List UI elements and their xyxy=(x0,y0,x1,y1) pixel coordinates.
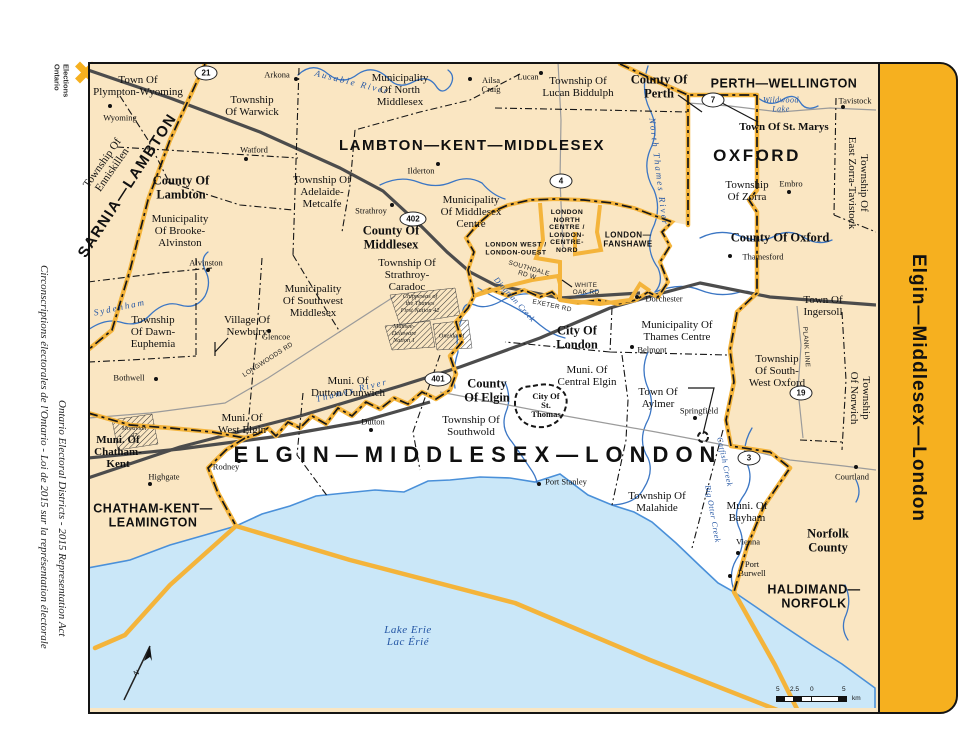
label-haldimand-norfolk: HALDIMAND—NORFOLK xyxy=(767,584,860,611)
label-chippewas-of-the-thames-first-na: Chippewas ofthe ThamesFirst Nation 42 xyxy=(401,294,440,314)
district-tab: Elgin—Middlesex—London xyxy=(878,62,958,714)
highway-shield-7: 7 xyxy=(702,93,725,108)
label-rodney: Rodney xyxy=(213,462,239,471)
town-dot xyxy=(736,551,740,555)
label-vienna: Vienna xyxy=(736,537,760,546)
label-wyoming: Wyoming xyxy=(103,113,137,122)
town-dot xyxy=(148,482,152,486)
label-courtland: Courtland xyxy=(835,472,869,481)
label-arkona: Arkona xyxy=(264,70,290,79)
label-town-of-st-marys: Town Of St. Marys xyxy=(739,122,828,134)
highway-shield-402: 402 xyxy=(400,212,427,227)
label-port-burwell: PortBurwell xyxy=(738,560,765,578)
town-dot xyxy=(294,77,298,81)
label-township-of-dawn-euphemia: TownshipOf Dawn-Euphemia xyxy=(131,315,176,351)
label-chatham-kent-leamington: CHATHAM-KENT—LEAMINGTON xyxy=(93,503,212,530)
map-page: ElectionsOntario Circonscriptions électo… xyxy=(0,0,959,740)
label-springfield: Springfield xyxy=(680,406,718,415)
scale-bar-graphic xyxy=(776,696,847,702)
highway-shield-19: 19 xyxy=(790,386,813,401)
highway-shield-4: 4 xyxy=(550,174,573,189)
label-lake-erie-lac-ri: Lake ErieLac Érié xyxy=(384,625,432,649)
label-township-of-malahide: Township OfMalahide xyxy=(628,491,686,515)
label-london-fanshawe: LONDON—FANSHAWE xyxy=(603,231,652,248)
label-alvinston: Alvinston xyxy=(189,258,223,267)
label-dutton: Dutton xyxy=(361,417,385,426)
label-town-of-plympton-wyoming: Town OfPlympton-Wyoming xyxy=(93,75,183,99)
label-municipality-of-middlesex-centre: MunicipalityOf MiddlesexCentre xyxy=(441,195,502,231)
town-dot xyxy=(468,77,472,81)
label-county-of-perth: County OfPerth xyxy=(631,74,688,101)
town-dot xyxy=(787,190,791,194)
label-oxford: OXFORD xyxy=(713,147,801,165)
label-watford: Watford xyxy=(240,145,268,154)
label-thamesford: Thamesford xyxy=(742,252,783,261)
town-dot xyxy=(635,295,639,299)
label-municipality-of-southwest-middle: MunicipalityOf SouthwestMiddlesex xyxy=(283,284,343,320)
label-ailsa-craig: AilsaCraig xyxy=(482,76,501,94)
label-township-of-south-west-oxford: TownshipOf South-West Oxford xyxy=(749,354,805,390)
label-municipality-of-thames-centre: Municipality OfThames Centre xyxy=(641,320,712,344)
label-county-of-middlesex: County OfMiddlesex xyxy=(363,225,420,252)
label-township-of-lucan-biddulph: Township OfLucan Biddulph xyxy=(542,76,613,100)
scale-label: 2.5 xyxy=(790,686,799,693)
label-township-of-norwich: TownshipOf Norwich xyxy=(847,372,871,425)
label-london-north-centre-london-centr: LONDONNORTHCENTRE /LONDON-CENTRE-NORD xyxy=(549,209,585,255)
label-lambton-kent-middlesex: LAMBTON—KENT—MIDDLESEX xyxy=(339,138,605,154)
town-dot xyxy=(537,482,541,486)
label-county-of-lambton: County OfLambton xyxy=(153,175,210,202)
label-dorchester: Dorchester xyxy=(645,294,682,303)
town-dot xyxy=(728,574,732,578)
label-oneida-41: Oneida 41 xyxy=(439,334,465,341)
label-county-of-elgin: CountyOf Elgin xyxy=(464,378,510,405)
label-muni-of-central-elgin: Muni. OfCentral Elgin xyxy=(558,365,617,389)
town-dot xyxy=(693,416,697,420)
label-ilderton: Ilderton xyxy=(408,166,435,175)
label-city-of-st-thomas: City OfSt.Thomas xyxy=(531,392,560,420)
town-dot xyxy=(206,268,210,272)
label-township-of-zorra: TownshipOf Zorra xyxy=(725,180,768,204)
label-township-of-east-zorra-tavistock: Township OfEast Zorra-Tavistock xyxy=(845,137,869,229)
label-township-of-warwick: TownshipOf Warwick xyxy=(225,95,279,119)
town-dot xyxy=(237,459,241,463)
label-muni-of-west-elgin: Muni. OfWest Elgin xyxy=(218,413,266,437)
scale-label: 0 xyxy=(810,686,814,693)
label-lucan: Lucan xyxy=(517,72,538,81)
town-dot xyxy=(267,329,271,333)
label-glencoe: Glencoe xyxy=(262,332,290,341)
label-muni-of-bayham: Muni. OfBayham xyxy=(727,501,768,525)
label-wildwood-lake: WildwoodLake xyxy=(763,96,799,113)
label-moravian-47: Moravian47 xyxy=(122,426,147,440)
label-municipality-of-brooke-alvinston: MunicipalityOf Brooke-Alvinston xyxy=(152,214,209,250)
label-highgate: Highgate xyxy=(148,472,179,481)
label-norfolk-county: NorfolkCounty xyxy=(807,528,849,555)
town-dot xyxy=(244,157,248,161)
label-strathroy: Strathroy xyxy=(355,206,387,215)
highway-shield-3: 3 xyxy=(738,451,761,466)
highway-shield-21: 21 xyxy=(195,66,218,81)
scale-bar: 5 2.5 0 5 km xyxy=(770,686,874,708)
label-white-oak-rd: WHITEOAK RD xyxy=(573,282,600,296)
label-perth-wellington: PERTH—WELLINGTON xyxy=(711,77,858,91)
town-dot xyxy=(630,345,634,349)
town-dot xyxy=(841,105,845,109)
label-belmont: Belmont xyxy=(637,345,666,354)
label-elgin-middlesex-london: ELGIN—MIDDLESEX—LONDON xyxy=(234,443,723,467)
label-county-of-oxford: County Of Oxford xyxy=(731,231,830,245)
label-town-of-ingersoll: Town OfIngersoll xyxy=(803,295,842,319)
label-township-of-strathroy-caradoc: Township OfStrathroy-Caradoc xyxy=(378,258,436,294)
town-dot xyxy=(854,465,858,469)
town-dot xyxy=(728,254,732,258)
scale-label: 5 xyxy=(776,686,780,693)
label-muni-of-chatham-kent: Muni. OfChatham-Kent xyxy=(94,435,142,471)
label-munsee-delaware-nation-1: Munsee-DelawareNation 1 xyxy=(392,324,417,344)
label-port-stanley: Port Stanley xyxy=(545,477,587,486)
town-dot xyxy=(390,203,394,207)
scale-unit: km xyxy=(852,695,861,702)
town-dot xyxy=(369,428,373,432)
highway-shield-401: 401 xyxy=(425,372,452,387)
town-dot xyxy=(154,377,158,381)
label-embro: Embro xyxy=(779,179,802,188)
town-dot xyxy=(539,71,543,75)
town-dot xyxy=(108,104,112,108)
label-london-west-london-ouest: LONDON WEST /LONDON-OUEST xyxy=(485,241,546,256)
town-dot xyxy=(436,162,440,166)
label-township-of-southwold: Township OfSouthwold xyxy=(442,415,500,439)
label-town-of-aylmer: Town OfAylmer xyxy=(638,387,677,411)
district-tab-label: Elgin—Middlesex—London xyxy=(907,254,929,522)
label-township-of-adelaide-metcalfe: Township OfAdelaide-Metcalfe xyxy=(293,175,351,211)
map-geometry: N xyxy=(0,0,959,740)
scale-label: 5 xyxy=(842,686,846,693)
label-bothwell: Bothwell xyxy=(113,373,144,382)
label-city-of-london: City OfLondon xyxy=(556,325,598,352)
